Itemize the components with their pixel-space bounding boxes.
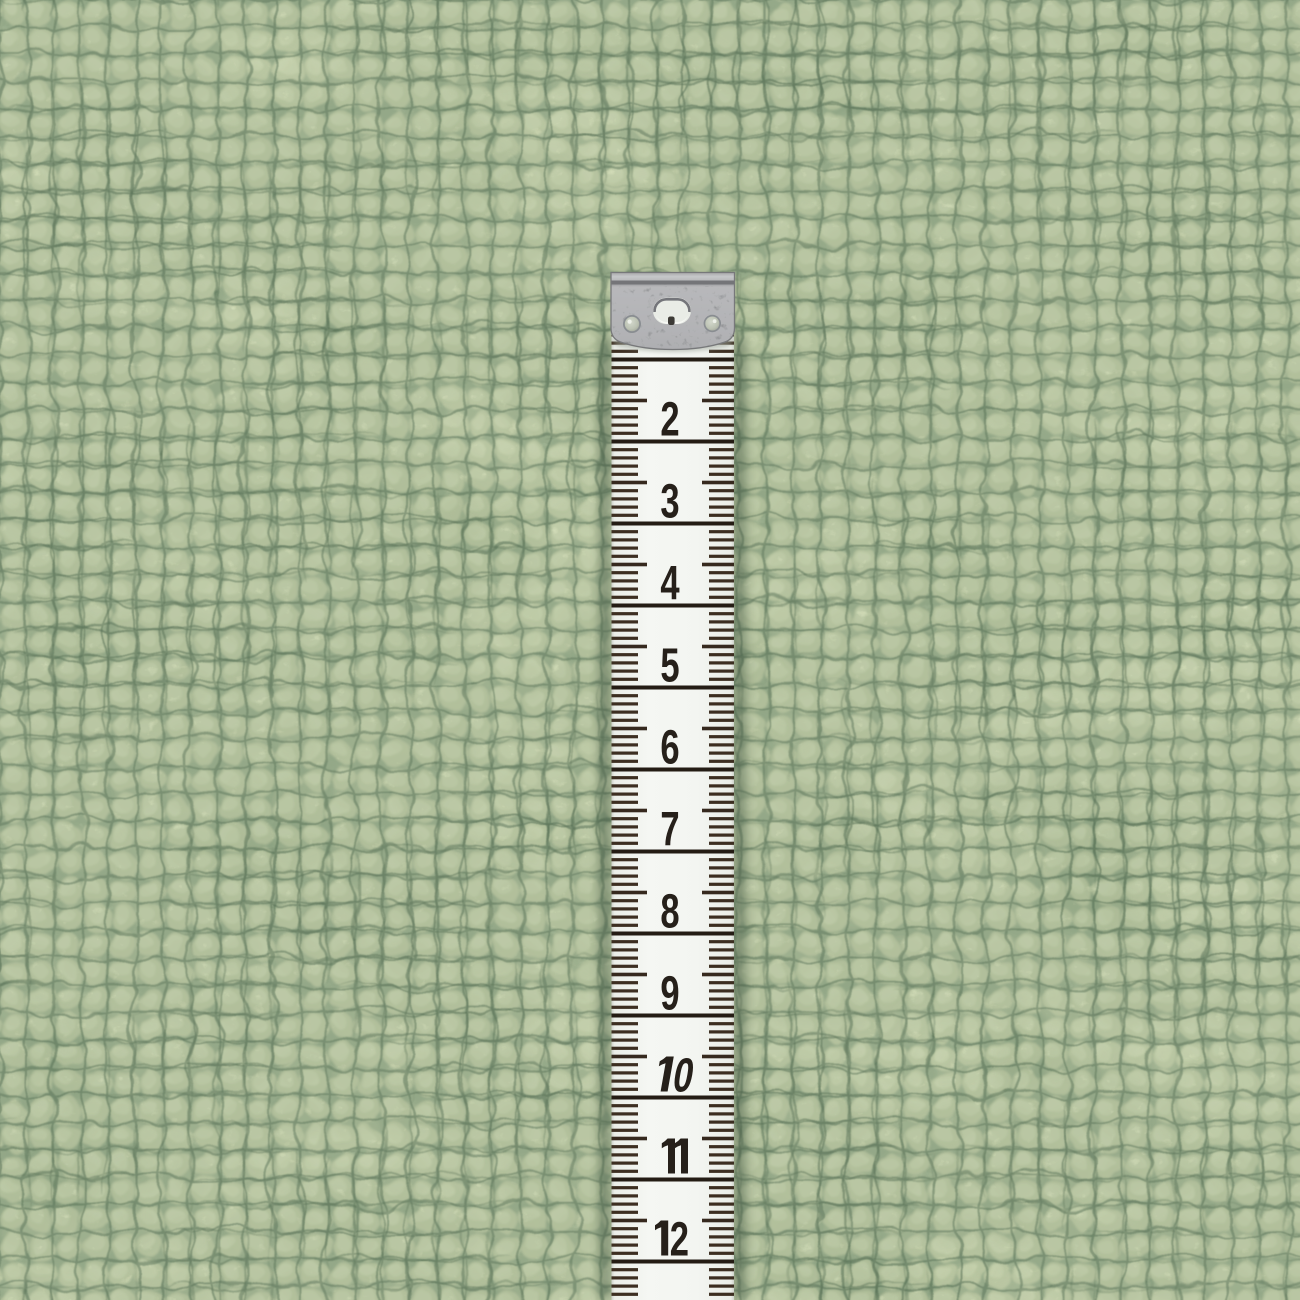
svg-text:2: 2 (670, 1212, 689, 1266)
svg-text:6: 6 (660, 720, 679, 774)
svg-text:8: 8 (660, 884, 679, 938)
svg-text:4: 4 (660, 556, 680, 610)
svg-text:2: 2 (660, 392, 679, 446)
svg-text:9: 9 (660, 966, 679, 1020)
svg-text:7: 7 (660, 802, 679, 856)
svg-text:5: 5 (660, 638, 679, 692)
svg-text:3: 3 (660, 474, 679, 528)
